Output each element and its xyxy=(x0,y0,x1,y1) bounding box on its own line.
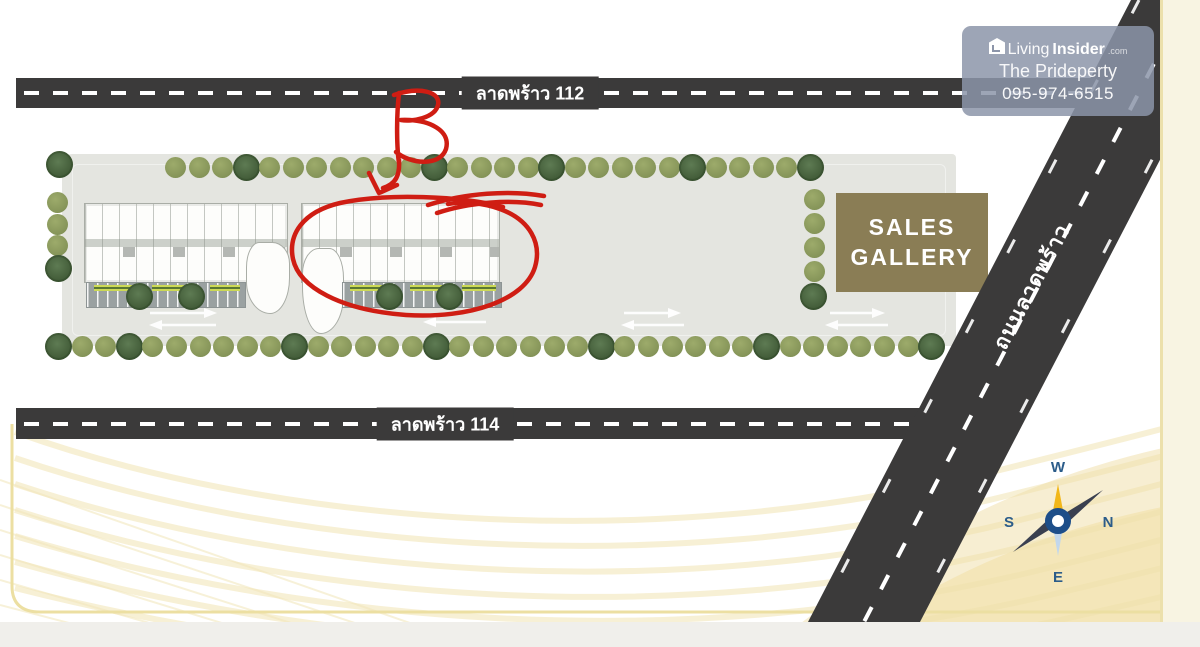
red-annotation xyxy=(0,0,1200,647)
annotation-circle xyxy=(292,197,537,316)
annotation-letter-b xyxy=(369,91,447,193)
site-plan-canvas: SALES GALLERY ลาดพร้าว 112 ลาดพร้าว 114 … xyxy=(0,0,1200,647)
